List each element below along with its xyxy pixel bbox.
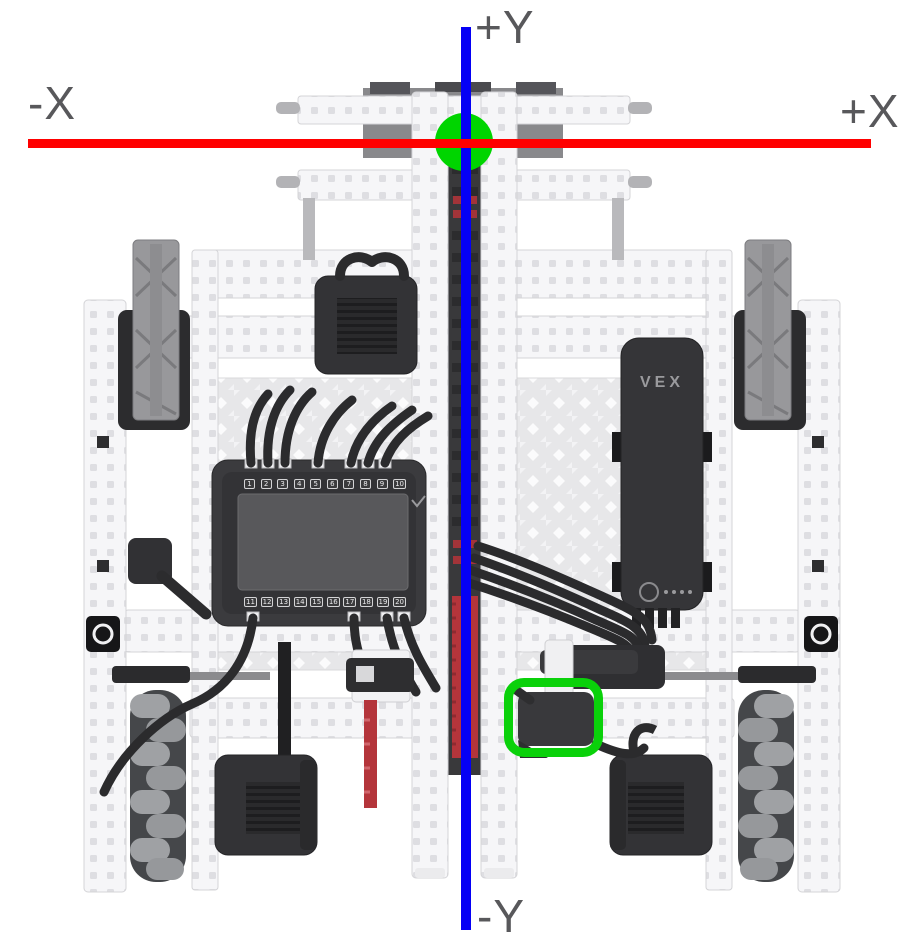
omni-wheel-bottom-left <box>130 690 186 882</box>
port-label: 6 <box>327 479 338 489</box>
port-label: 3 <box>277 479 288 489</box>
port-label: 12 <box>261 597 274 607</box>
sensor-highlight-box <box>504 678 603 757</box>
standoff-rod <box>278 642 291 772</box>
axis-label-pos-x: +X <box>840 88 900 134</box>
port-label: 1 <box>244 479 255 489</box>
axis-label-pos-y: +Y <box>475 4 535 50</box>
port-label: 7 <box>343 479 354 489</box>
port-label: 10 <box>393 479 406 489</box>
port-label: 16 <box>327 597 340 607</box>
battery-logo: VEX <box>621 374 703 392</box>
port-label: 4 <box>294 479 305 489</box>
port-label: 14 <box>294 597 307 607</box>
port-label: 15 <box>310 597 323 607</box>
port-label: 19 <box>377 597 390 607</box>
axis-label-neg-x: -X <box>28 80 76 126</box>
brain-port-row-bottom: 11 12 13 14 15 16 17 18 19 20 <box>244 597 406 607</box>
traction-wheel-top-right <box>734 240 806 430</box>
port-label: 20 <box>393 597 406 607</box>
port-label: 13 <box>277 597 290 607</box>
traction-wheel-top-left <box>118 240 190 430</box>
port-label: 5 <box>310 479 321 489</box>
bumper-switch-assembly <box>346 650 414 702</box>
bearing-block-right <box>804 616 838 652</box>
robot-coordinate-diagram: 1 2 3 4 5 6 7 8 9 10 11 12 13 14 15 16 1… <box>0 0 924 948</box>
red-pointer <box>364 700 377 808</box>
omni-wheel-bottom-right <box>738 690 794 882</box>
motor-bottom-left <box>215 755 317 855</box>
port-label: 9 <box>377 479 388 489</box>
port-label: 18 <box>360 597 373 607</box>
brain-port-row-top: 1 2 3 4 5 6 7 8 9 10 <box>244 479 406 489</box>
port-label: 11 <box>244 597 257 607</box>
port-label: 17 <box>343 597 356 607</box>
port-label: 8 <box>360 479 371 489</box>
bearing-block-left <box>86 616 120 652</box>
x-axis-line <box>28 139 871 148</box>
y-axis-line <box>461 27 471 930</box>
port-label: 2 <box>261 479 272 489</box>
axis-label-neg-y: -Y <box>477 893 525 939</box>
motor-bottom-right <box>610 728 712 855</box>
